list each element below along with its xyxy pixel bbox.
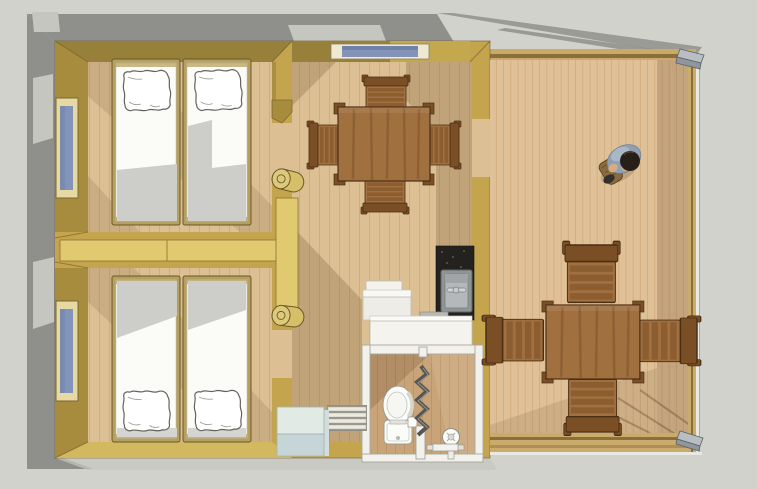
chair: [482, 315, 543, 365]
wall-inner-face: [55, 442, 292, 458]
deck-railing-right: [688, 60, 699, 455]
bathroom: [362, 345, 483, 462]
pillow: [194, 390, 241, 430]
skylight-shadow-gap: [288, 25, 386, 41]
deck: [482, 49, 704, 455]
chair: [640, 316, 701, 366]
bed-shadow: [117, 164, 177, 221]
head: [620, 151, 640, 171]
canvas-panel: [276, 198, 298, 308]
bedroom-1-window: [56, 98, 78, 198]
kitchen-sink: [441, 270, 472, 312]
chair: [362, 75, 410, 108]
scene-svg: [0, 0, 757, 489]
pillow: [123, 70, 170, 110]
deck-railing-bottom: [490, 433, 702, 455]
chair: [361, 181, 409, 214]
pillow: [194, 69, 242, 110]
deck-doorway-opening: [472, 119, 490, 177]
chair: [563, 241, 621, 302]
chair: [307, 121, 340, 169]
dining-table: [334, 103, 434, 185]
toilet: [383, 386, 414, 444]
dining-window: [331, 44, 429, 59]
window-light-patch: [33, 257, 54, 329]
entry-step: [277, 407, 329, 456]
bedroom-divider: [55, 232, 292, 268]
chair: [564, 379, 622, 435]
floor-plan-render: Top-down 3D floor plan render of a small…: [0, 0, 757, 489]
bedroom-2-window: [56, 301, 78, 401]
pillow: [123, 390, 171, 431]
window-light-patch: [33, 74, 53, 144]
deck-table: [542, 301, 644, 383]
chair: [428, 121, 461, 169]
doorway-opening: [272, 123, 292, 175]
doorway-opening: [272, 330, 292, 378]
